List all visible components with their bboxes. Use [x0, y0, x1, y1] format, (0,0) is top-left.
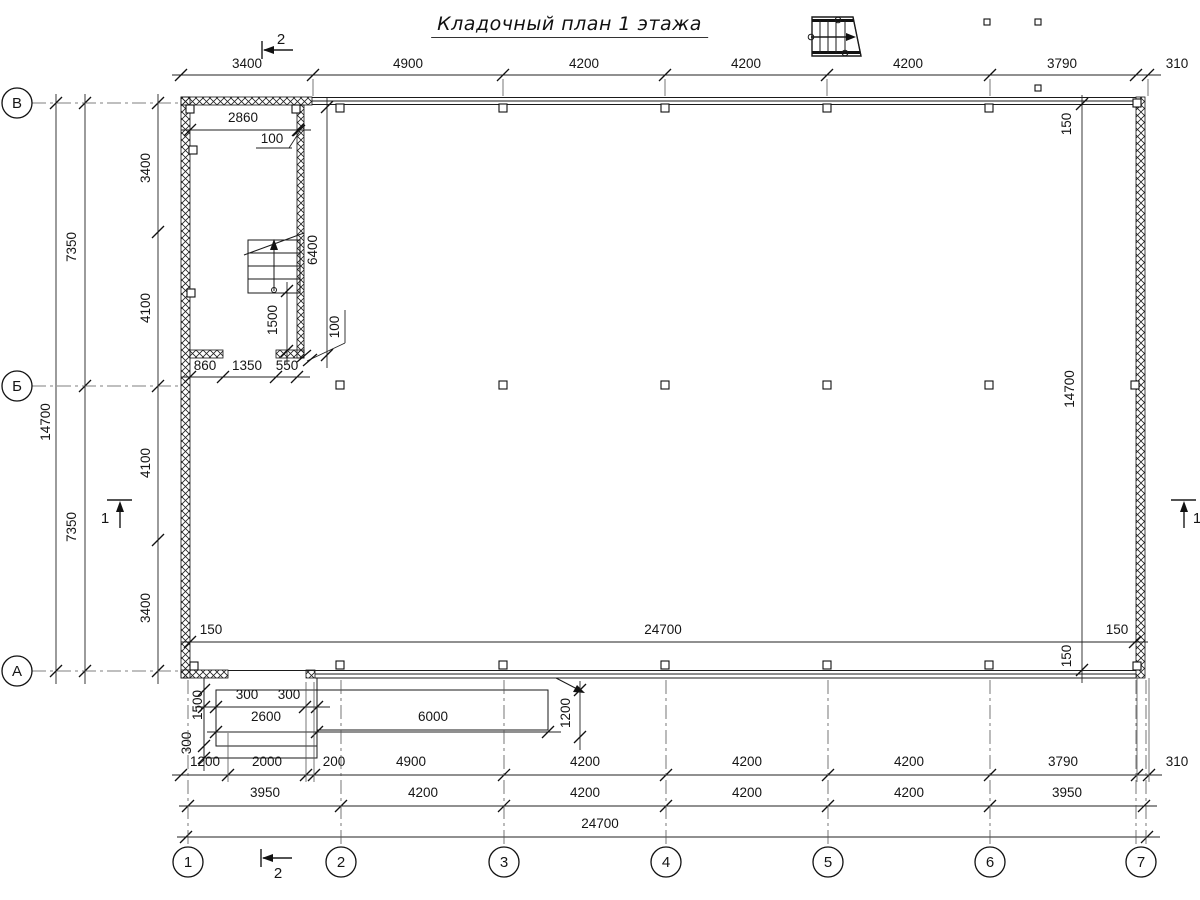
dim-label: 4200: [408, 785, 438, 800]
dim-label: 7350: [64, 232, 79, 262]
dim-label: 24700: [581, 816, 619, 831]
col-axis-label: 3: [500, 854, 508, 871]
floor-plan: 3400490042004200420037903102860100640015…: [0, 0, 1200, 900]
section-label: 1: [1193, 510, 1200, 527]
dim-label: 14700: [38, 403, 53, 441]
column-marker: [336, 104, 344, 112]
column-marker: [336, 381, 344, 389]
section-label: 1: [101, 510, 109, 527]
column-marker: [190, 662, 198, 670]
dim-label: 3950: [250, 785, 280, 800]
dim-label: 24700: [644, 622, 682, 637]
dim-label: 4200: [570, 785, 600, 800]
col-axis-label: 2: [337, 854, 345, 871]
column-marker: [499, 381, 507, 389]
dim-label: 300: [179, 732, 194, 755]
dim-label: 2600: [251, 709, 281, 724]
row-axis-label: В: [12, 95, 22, 112]
dim-label: 3790: [1048, 754, 1078, 769]
dim-label: 4200: [570, 754, 600, 769]
dim-label: 1500: [190, 690, 205, 720]
stairs: [244, 233, 304, 293]
row-axis-label: Б: [12, 378, 22, 395]
col-axis-label: 5: [824, 854, 832, 871]
column-marker: [1133, 662, 1141, 670]
column-marker: [187, 289, 195, 297]
column-marker: [499, 104, 507, 112]
dim-label: 310: [1166, 754, 1189, 769]
dim-label: 550: [276, 358, 299, 373]
dim-label: 150: [1106, 622, 1129, 637]
column-marker: [499, 661, 507, 669]
dim-label: 200: [323, 754, 346, 769]
column-marker: [661, 381, 669, 389]
column-marker: [984, 19, 990, 25]
column-marker: [1133, 99, 1141, 107]
dim-label: 4100: [138, 448, 153, 478]
dim-label: 860: [194, 358, 217, 373]
column-marker: [189, 146, 197, 154]
column-marker: [661, 104, 669, 112]
column-marker: [823, 661, 831, 669]
dim-label: 6400: [305, 235, 320, 265]
col-axis-label: 6: [986, 854, 994, 871]
dim-label: 4200: [732, 785, 762, 800]
column-marker: [1035, 85, 1041, 91]
section-arrow-icon: [1180, 501, 1188, 512]
dim-label: 4200: [732, 754, 762, 769]
column-marker: [985, 381, 993, 389]
dim-label: 150: [1059, 113, 1074, 136]
dim-label: 7350: [64, 512, 79, 542]
dim-label: 3400: [138, 153, 153, 183]
col-axis-label: 1: [184, 854, 192, 871]
dim-label: 4200: [894, 754, 924, 769]
dim-label: 4200: [731, 56, 761, 71]
dim-label: 4200: [569, 56, 599, 71]
column-marker: [336, 661, 344, 669]
dim-label: 3950: [1052, 785, 1082, 800]
dim-label: 300: [278, 687, 301, 702]
dim-label: 2000: [252, 754, 282, 769]
dim-label: 2860: [228, 110, 258, 125]
dim-label: 310: [1166, 56, 1189, 71]
column-marker: [186, 105, 194, 113]
dim-label: 100: [261, 131, 284, 146]
column-marker: [985, 104, 993, 112]
dim-label: 3790: [1047, 56, 1077, 71]
dim-label: 3400: [232, 56, 262, 71]
dim-label: 1200: [558, 698, 573, 728]
column-marker: [1131, 381, 1139, 389]
section-arrow-icon: [263, 46, 274, 54]
column-marker: [1035, 19, 1041, 25]
dim-label: 3400: [138, 593, 153, 623]
col-axis-label: 4: [662, 854, 670, 871]
column-marker: [823, 381, 831, 389]
dim-label: 100: [327, 316, 342, 339]
section-label: 2: [274, 865, 282, 882]
column-marker: [823, 104, 831, 112]
column-marker: [661, 661, 669, 669]
section-arrow-icon: [116, 501, 124, 512]
dim-label: 4200: [894, 785, 924, 800]
dim-label: 4100: [138, 293, 153, 323]
dim-label: 300: [236, 687, 259, 702]
drawing-canvas: Кладочный план 1 этажа: [0, 0, 1200, 900]
dim-label: 1350: [232, 358, 262, 373]
dim-label: 4200: [893, 56, 923, 71]
row-axis-label: А: [12, 663, 22, 680]
section-label: 2: [277, 31, 285, 48]
dim-label: 6000: [418, 709, 448, 724]
dim-label: 4900: [393, 56, 423, 71]
dim-label: 4900: [396, 754, 426, 769]
dim-label: 1500: [265, 305, 280, 335]
stair-key-icon: [808, 17, 861, 56]
dim-label: 150: [1059, 645, 1074, 668]
section-arrow-icon: [262, 854, 273, 862]
col-axis-label: 7: [1137, 854, 1145, 871]
dim-label: 1200: [190, 754, 220, 769]
column-marker: [985, 661, 993, 669]
dim-label: 150: [200, 622, 223, 637]
column-marker: [292, 105, 300, 113]
dim-label: 14700: [1062, 370, 1077, 408]
